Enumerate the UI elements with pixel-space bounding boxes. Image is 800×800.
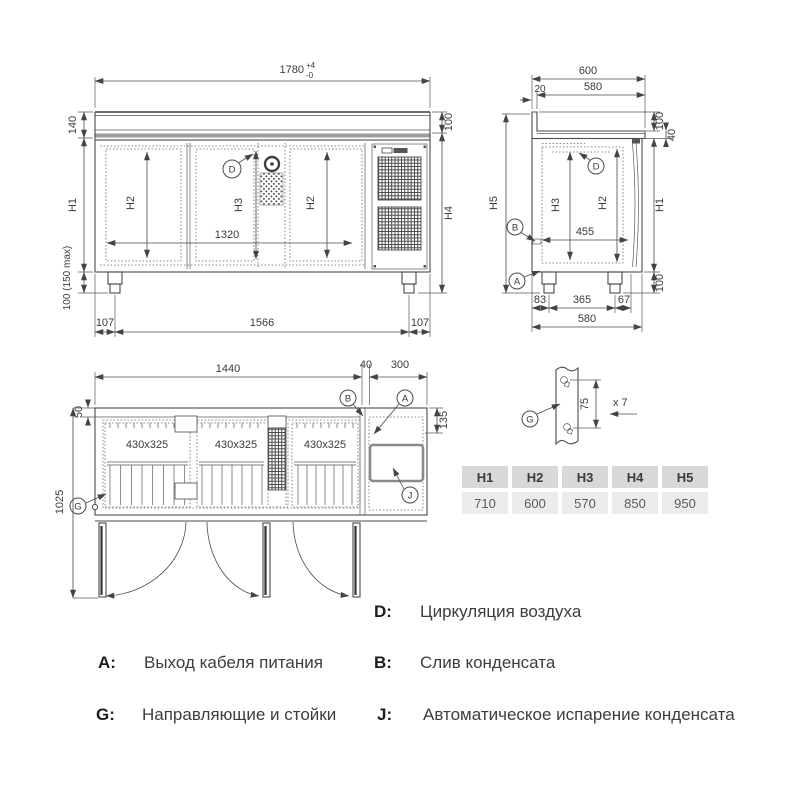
dim-leg-height: 100 <box>654 274 666 292</box>
dim-backsplash-thickness: 20 <box>534 84 546 95</box>
legend-key: D: <box>374 602 420 622</box>
legend-item-a: A:Выход кабеля питания <box>98 653 323 673</box>
legend-key: B: <box>374 653 420 673</box>
marker-drain-label: B <box>512 223 518 234</box>
legend-key: A: <box>98 653 144 673</box>
legend-text: Направляющие и стойки <box>142 705 336 724</box>
dim-back-offset: 50 <box>73 406 85 418</box>
dim-h4: H4 <box>443 206 455 220</box>
door-1-open <box>99 522 186 597</box>
door-2-open <box>207 522 270 597</box>
dim-leg-offset-right: 107 <box>411 317 429 329</box>
dim-slot-pitch: 75 <box>579 398 591 410</box>
dim-depth-top: 580 <box>584 81 602 93</box>
dim-depth-bottom: 580 <box>578 313 596 325</box>
table-value: 710 <box>462 492 508 514</box>
compartment-3: 430x325 <box>292 423 358 507</box>
table-value: 950 <box>662 492 708 514</box>
marker-rails-label: G <box>526 415 533 426</box>
dim-backsplash-height: 100 <box>654 112 666 130</box>
dim-leg-offset-left: 107 <box>96 317 114 329</box>
evaporation-tray <box>370 445 423 481</box>
table-header: H1 <box>462 466 508 488</box>
dim-leg-back-offset: 67 <box>618 294 630 306</box>
dim-h2: H2 <box>597 196 609 210</box>
dim-divider-width: 40 <box>360 359 372 371</box>
table-header: H4 <box>612 466 658 488</box>
evaporator-grid <box>260 173 283 205</box>
marker-rails-label: G <box>74 502 81 513</box>
dim-h1: H1 <box>654 198 666 212</box>
keyhole-slot <box>561 377 570 388</box>
dim-h3: H3 <box>233 198 245 212</box>
door-3-open <box>293 522 360 597</box>
dim-worktop-thickness: 40 <box>666 129 678 141</box>
dim-unit-width: 300 <box>391 359 409 371</box>
legend-item-g: G:Направляющие и стойки <box>96 705 336 725</box>
keyhole-slot <box>564 424 573 435</box>
marker-air-label: D <box>593 162 600 173</box>
dim-inner-width: 1320 <box>215 229 239 241</box>
quantity-label: x 7 <box>613 397 628 409</box>
bracket-detail-drawing: 75 x 7 G <box>500 355 660 465</box>
dim-depth-open: 1025 <box>54 490 66 514</box>
table-header: H3 <box>562 466 608 488</box>
dim-top-height: 140 <box>67 116 79 134</box>
legend-text: Выход кабеля питания <box>144 653 323 672</box>
legend-item-j: J:Автоматическое испарение конденсата <box>377 705 735 725</box>
table-header: H2 <box>512 466 558 488</box>
dim-leg-front-offset: 83 <box>534 294 546 306</box>
door-profile <box>633 143 639 267</box>
shelf-size-label: 430x325 <box>126 439 168 451</box>
table-value: 600 <box>512 492 558 514</box>
dim-h1: H1 <box>67 198 79 212</box>
mullion-support <box>268 416 286 428</box>
side-view-drawing: D H3 H2 455 B A H5 600 580 20 <box>460 45 800 345</box>
dim-leg-height: 100 (150 max) <box>62 246 73 310</box>
dim-top-right: 100 <box>443 113 455 131</box>
height-size-table: H1 H2 H3 H4 H5 710 600 570 850 950 <box>462 466 708 514</box>
dim-tol-plus: +4 <box>306 61 316 70</box>
dim-h5: H5 <box>488 196 500 210</box>
dim-depth-total: 600 <box>579 65 597 77</box>
marker-cable-label: A <box>514 277 521 288</box>
marker-drain-label: B <box>345 394 351 405</box>
door-hinge <box>632 139 640 144</box>
table-value: 850 <box>612 492 658 514</box>
mullion-support <box>175 416 197 432</box>
table-value: 570 <box>562 492 608 514</box>
dim-leg-span: 365 <box>573 294 591 306</box>
control-panel <box>382 148 392 153</box>
shelf-size-label: 430x325 <box>215 439 257 451</box>
leg-front <box>608 272 622 293</box>
legend-text: Циркуляция воздуха <box>420 602 581 621</box>
front-view-drawing: 1780 +4 -0 <box>20 45 460 345</box>
legend-key: J: <box>377 705 423 725</box>
marker-cable-label: A <box>402 394 409 405</box>
spec-sheet: 1780 +4 -0 <box>0 0 800 800</box>
leg-right <box>402 272 416 293</box>
legend-text: Автоматическое испарение конденсата <box>423 705 735 724</box>
legend-key: G: <box>96 705 142 725</box>
dim-leg-span: 1566 <box>250 317 274 329</box>
ventilation-grille-bottom <box>378 207 421 250</box>
leg-left <box>108 272 122 293</box>
legend-item-b: B:Слив конденсата <box>374 653 555 673</box>
marker-air-label: D <box>229 165 236 176</box>
drain-fitting <box>533 239 541 244</box>
dim-h2-left: H2 <box>125 196 137 210</box>
dim-inner-width: 1440 <box>216 363 240 375</box>
dim-inner-depth: 455 <box>576 226 594 238</box>
legend-item-d: D:Циркуляция воздуха <box>374 602 581 622</box>
shelf-size-label: 430x325 <box>304 439 346 451</box>
dim-h2-right: H2 <box>305 196 317 210</box>
mullion-support <box>175 483 197 499</box>
top-view-drawing: 430x325 430x325 430x325 <box>40 350 460 620</box>
legend-text: Слив конденсата <box>420 653 555 672</box>
dim-total-width: 1780 <box>280 64 304 76</box>
marker-evaporation-label: J <box>408 491 413 502</box>
table-header: H5 <box>662 466 708 488</box>
leg-back <box>542 272 556 293</box>
ventilation-grille-top <box>378 157 421 200</box>
dim-side-offset: 135 <box>438 411 450 429</box>
dim-tol-minus: -0 <box>306 71 314 80</box>
dim-h3: H3 <box>550 198 562 212</box>
evaporator-strip <box>268 428 286 490</box>
